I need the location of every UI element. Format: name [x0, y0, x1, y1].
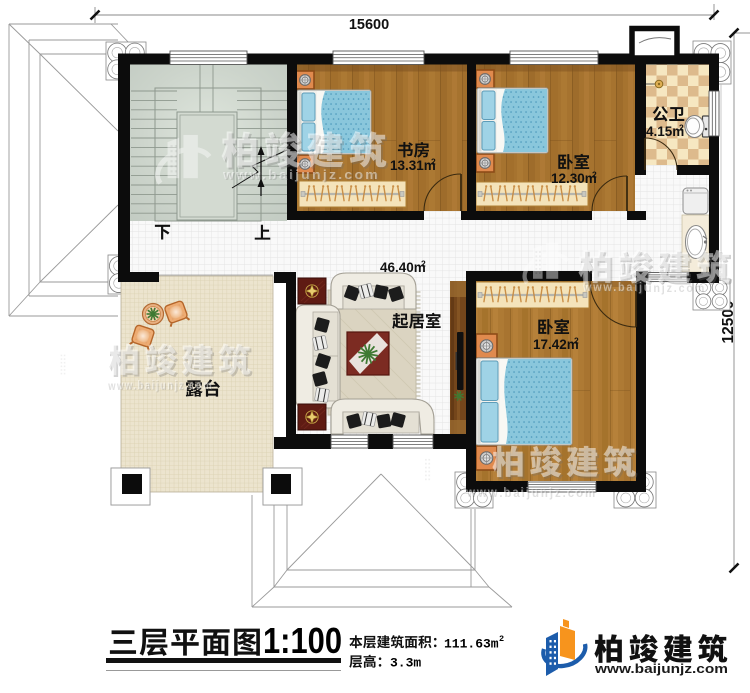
svg-text:2: 2 — [421, 259, 426, 269]
svg-text:1:100: 1:100 — [263, 620, 342, 661]
svg-text:2: 2 — [592, 170, 597, 180]
svg-text:111.63m: 111.63m — [444, 637, 499, 652]
svg-text:www.baijunjz.com: www.baijunjz.com — [583, 281, 706, 295]
svg-text:3.3m: 3.3m — [390, 656, 421, 671]
svg-text:46.40m: 46.40m — [380, 260, 426, 275]
svg-text:12.30m: 12.30m — [551, 171, 597, 186]
svg-text:www.baijunjz.com: www.baijunjz.com — [594, 661, 728, 676]
svg-text:www.baijunjz.com: www.baijunjz.com — [107, 379, 214, 393]
svg-text:2: 2 — [679, 123, 684, 133]
svg-text:15600: 15600 — [349, 17, 389, 33]
svg-text:www.baijunjz.com: www.baijunjz.com — [223, 169, 381, 183]
svg-text:17.42m: 17.42m — [533, 337, 579, 352]
svg-text:13.31m: 13.31m — [390, 158, 436, 173]
svg-text:2: 2 — [574, 336, 579, 346]
svg-text:2: 2 — [431, 157, 436, 167]
svg-text:2: 2 — [499, 634, 504, 644]
svg-text:www.baijunjz.com: www.baijunjz.com — [466, 486, 597, 500]
